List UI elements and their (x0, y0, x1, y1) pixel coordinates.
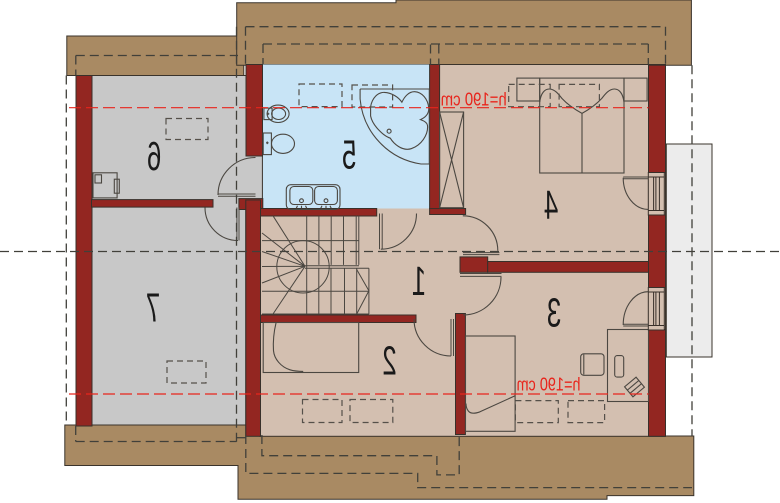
svg-text:5: 5 (342, 133, 356, 178)
svg-text:1: 1 (412, 259, 426, 304)
svg-text:6: 6 (147, 134, 161, 179)
svg-text:h=190 cm: h=190 cm (441, 89, 507, 110)
svg-text:h=190 cm: h=190 cm (517, 373, 581, 394)
svg-text:4: 4 (544, 183, 558, 228)
svg-text:7: 7 (146, 286, 160, 331)
svg-text:3: 3 (547, 291, 561, 336)
svg-text:2: 2 (382, 339, 396, 384)
